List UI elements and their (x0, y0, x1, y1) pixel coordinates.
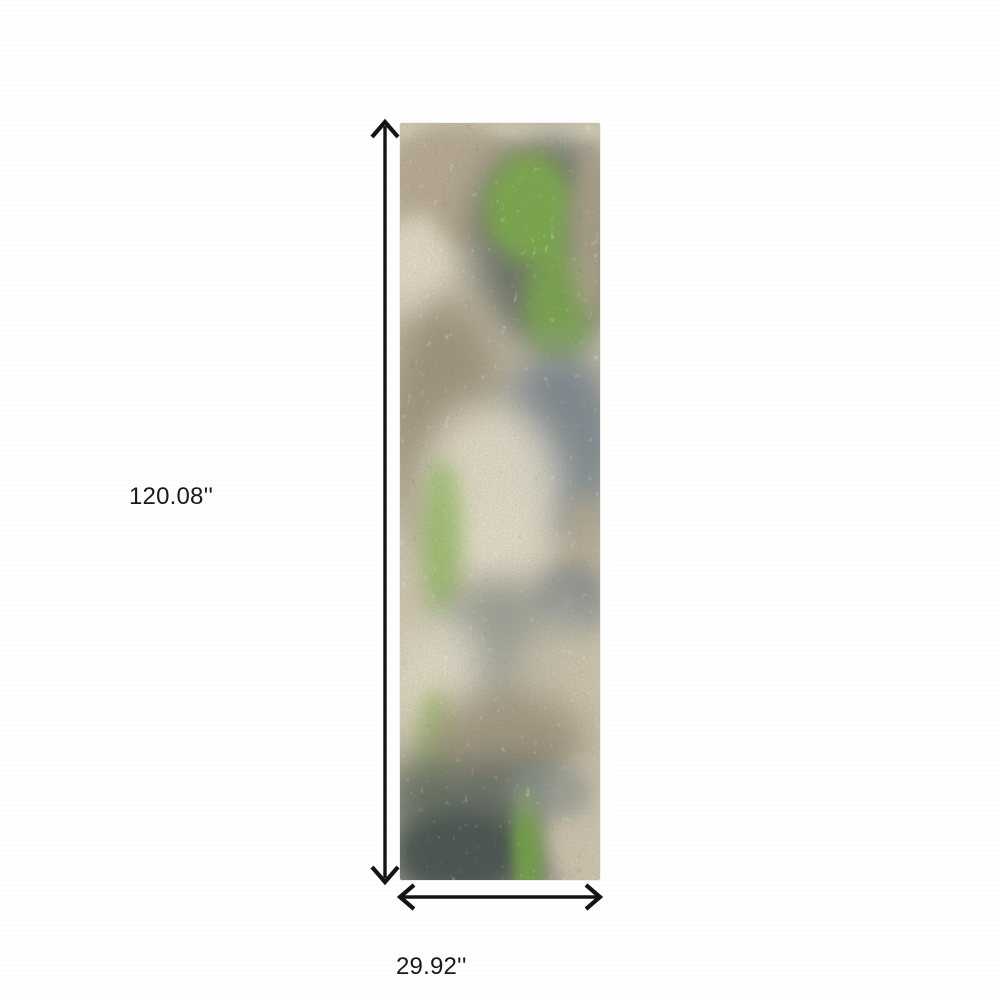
vertical-dimension-arrow (372, 122, 398, 882)
product-dimension-image: 120.08'' 29.92'' (0, 0, 1000, 1000)
rug-pattern-graphic (400, 123, 600, 880)
horizontal-dimension-arrow (400, 885, 600, 909)
width-dimension-label: 29.92'' (396, 953, 467, 981)
rug-product-image (400, 123, 600, 880)
height-dimension-label: 120.08'' (129, 483, 213, 511)
